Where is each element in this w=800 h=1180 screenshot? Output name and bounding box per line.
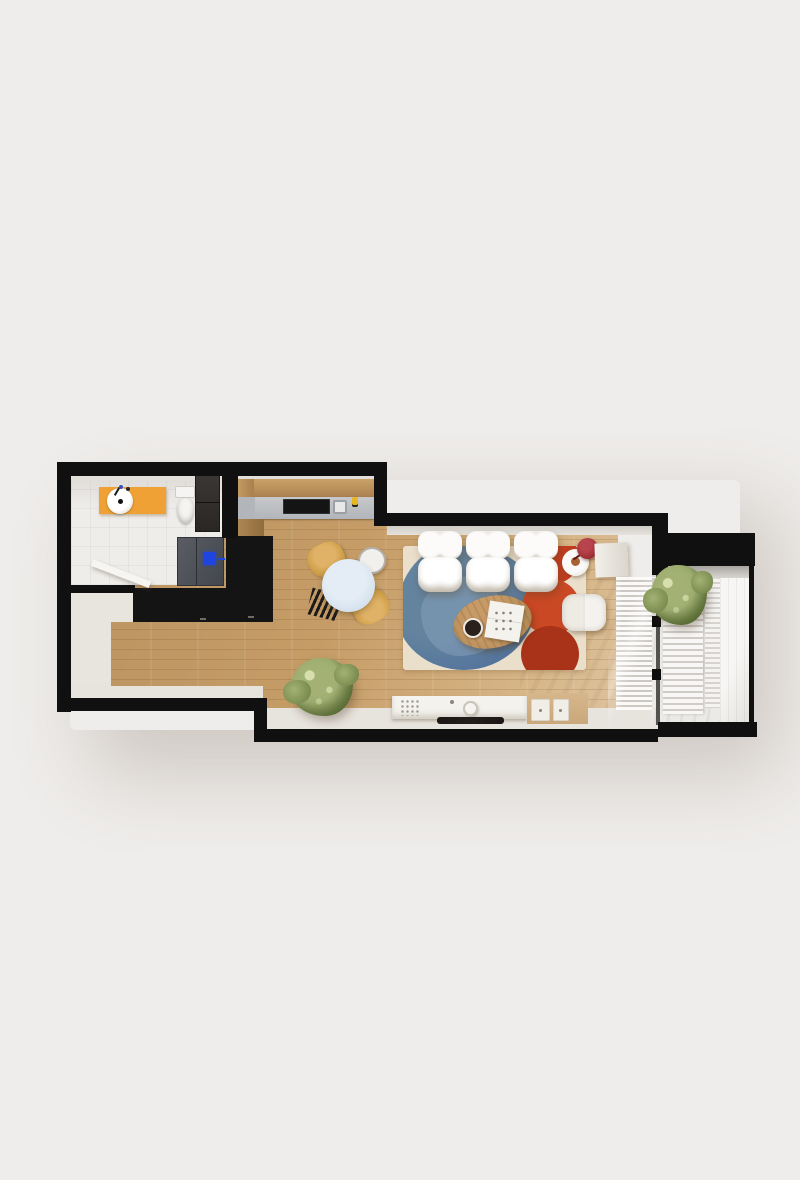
cabinet-handle: [200, 618, 206, 620]
console-small-object: [450, 700, 454, 704]
kitchen-sink: [333, 500, 347, 514]
sofa-seat-cushion: [514, 557, 558, 592]
door-handle: [652, 669, 661, 680]
sofa-seat-cushion: [466, 557, 510, 592]
rug-red-circle-3: [521, 626, 579, 670]
faucet-detail: [126, 487, 130, 491]
potted-plant-living: [291, 658, 353, 716]
floorplan-render: [0, 0, 800, 1180]
balcony-louver-screen-2: [705, 579, 720, 708]
cooktop: [283, 499, 330, 514]
sofa-back-cushion: [418, 531, 462, 559]
appliance-blue-indicator: [217, 558, 225, 560]
potted-plant-balcony: [651, 565, 707, 625]
yellow-bottle: [352, 497, 358, 507]
wall-bottom-left: [57, 698, 267, 711]
drawer-knob: [539, 709, 542, 712]
bathroom-cabinet: [195, 474, 220, 532]
refrigerator-door-split: [196, 537, 197, 586]
wall-bottom: [254, 729, 658, 742]
sofa-back-cushion: [466, 531, 510, 559]
wall-balcony-top: [652, 533, 755, 566]
television: [437, 717, 504, 724]
wall-living-top: [374, 513, 668, 526]
wall-bathroom-divider: [222, 462, 238, 538]
sink-drain: [118, 499, 123, 504]
sofa-seat-cushion: [418, 557, 462, 592]
pouf: [562, 594, 606, 631]
sofa: [418, 531, 558, 592]
console-decor-sketch: [400, 699, 420, 716]
dining-table: [322, 559, 375, 612]
magazine-text-specks: [493, 609, 515, 635]
appliance-blue-panel: [203, 552, 216, 565]
bathroom-cabinet-seam: [195, 502, 220, 503]
coffee-cup: [463, 618, 483, 638]
wall-bathroom-bottom: [71, 585, 135, 593]
window-bench: [594, 542, 628, 577]
toilet-tank: [175, 486, 195, 498]
faucet-detail: [119, 485, 123, 489]
kitchen-upper-counter: [238, 479, 374, 497]
wall-balcony-bottom: [658, 722, 757, 737]
drawer-knob: [559, 709, 562, 712]
wall-left: [57, 462, 71, 712]
speaker: [463, 701, 478, 716]
cabinet-handle: [248, 616, 254, 618]
sofa-back-cushion: [514, 531, 558, 559]
refrigerator: [177, 537, 224, 586]
wall-balcony-right: [749, 566, 754, 727]
balcony-side-wall: [720, 578, 749, 724]
tall-cabinet-wood-top: [234, 519, 264, 536]
kitchen-tall-cabinet: [226, 536, 273, 589]
